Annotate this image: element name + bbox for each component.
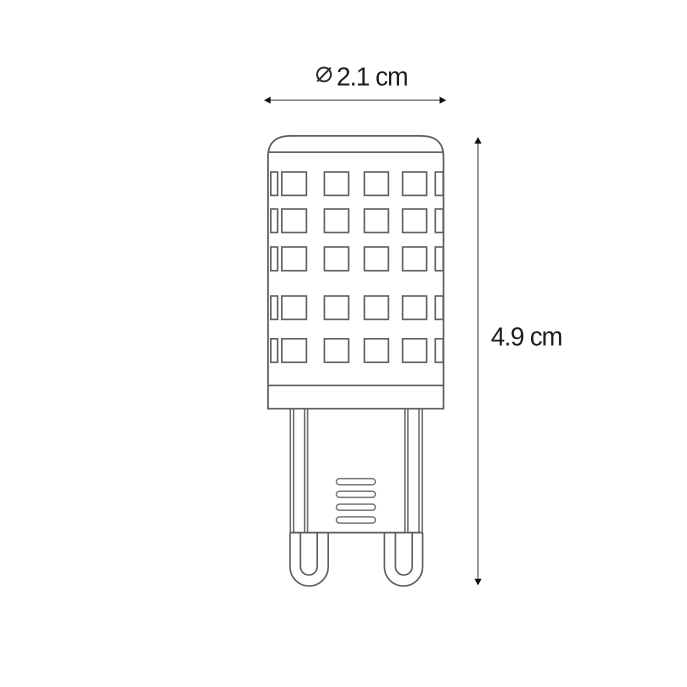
svg-text:4.9 cm: 4.9 cm bbox=[491, 324, 562, 352]
svg-text:2.1 cm: 2.1 cm bbox=[337, 63, 408, 91]
